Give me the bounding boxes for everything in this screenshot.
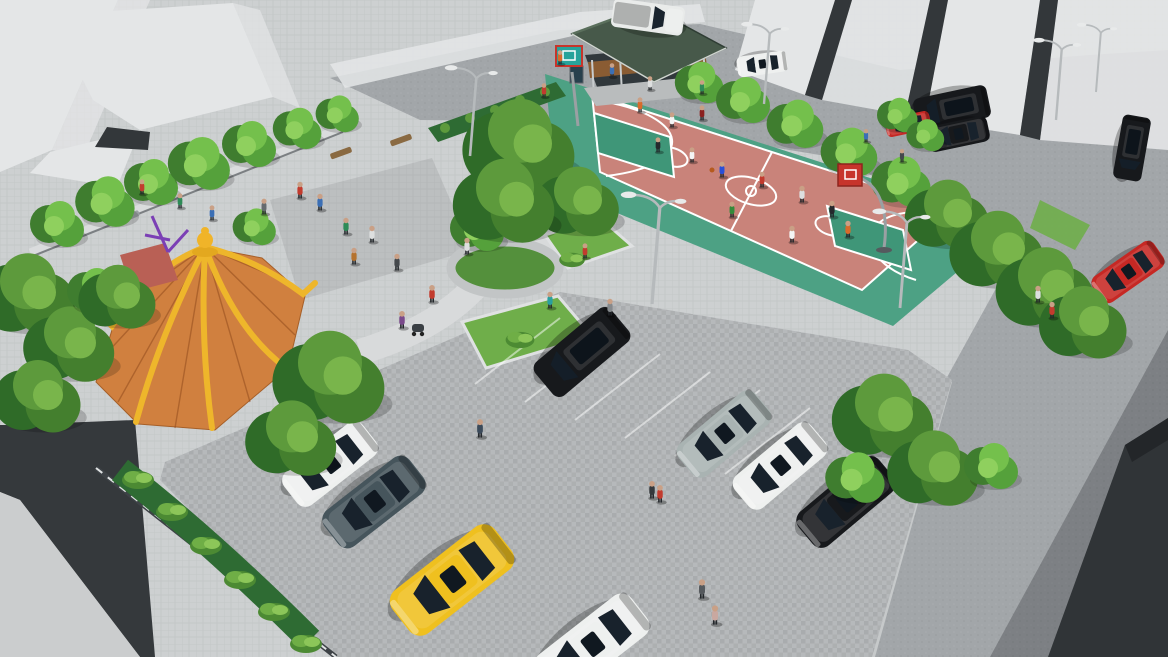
basketball bbox=[710, 168, 715, 173]
backboard-right bbox=[838, 164, 862, 186]
park-rendering bbox=[0, 0, 1168, 657]
rendering-stage bbox=[0, 0, 1168, 657]
building-bottom-left bbox=[0, 420, 155, 657]
